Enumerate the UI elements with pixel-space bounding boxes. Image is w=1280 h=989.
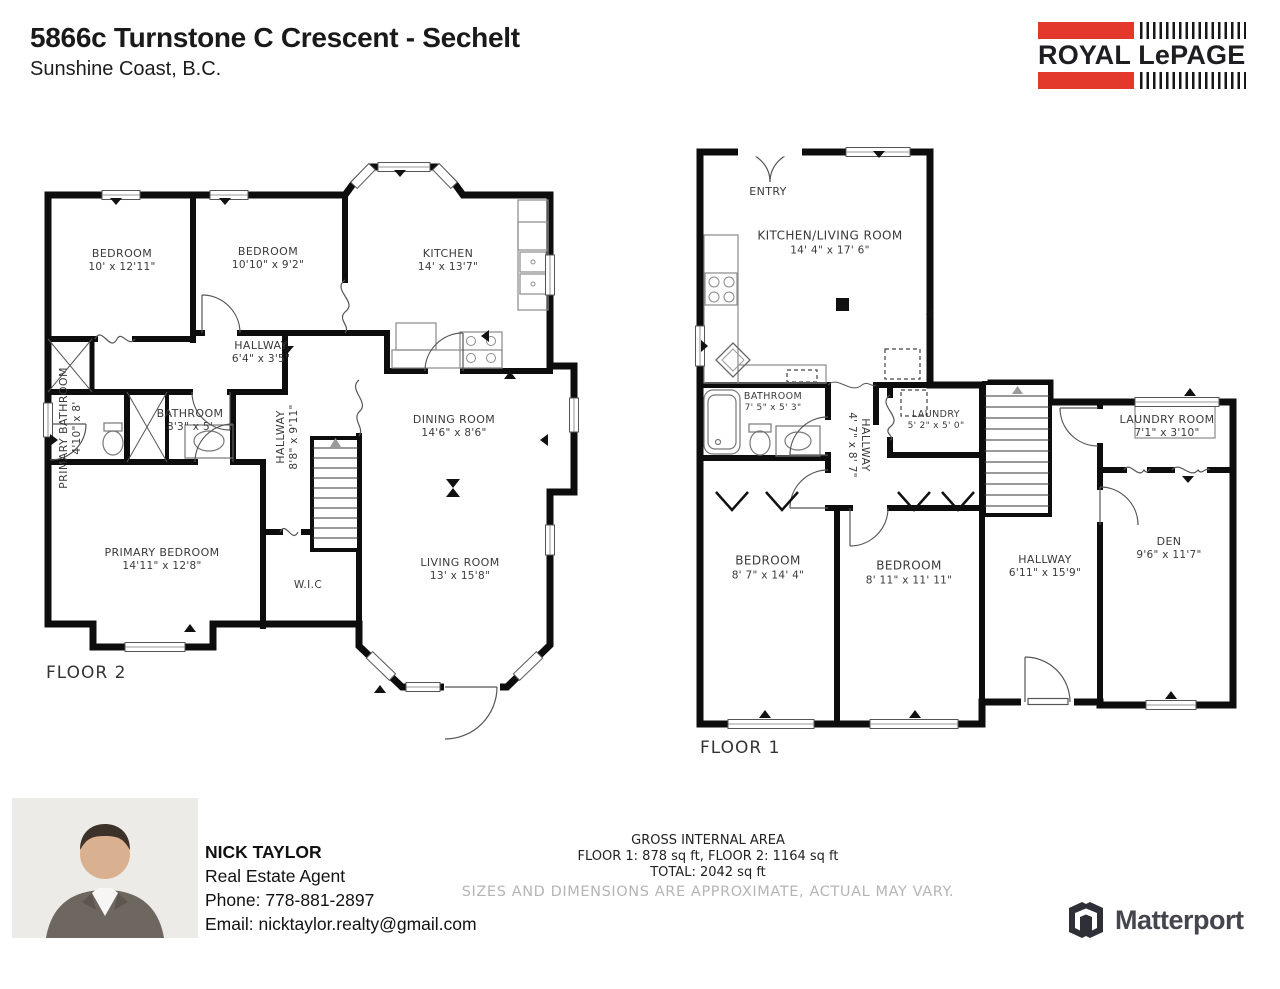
- room-label-bathroom: BATHROOM 7' 5" x 5' 3": [744, 391, 802, 415]
- room-name: W.I.C: [294, 579, 322, 593]
- room-label-primary-bedroom: PRIMARY BEDROOM 14'11" x 12'8": [104, 546, 219, 574]
- area-floors: FLOOR 1: 878 sq ft, FLOOR 2: 1164 sq ft: [448, 849, 968, 865]
- room-label-hallway2: HALLWAY 6'11" x 15'9": [1009, 553, 1081, 581]
- room-label-entry: ENTRY: [749, 185, 787, 199]
- room-dims: 14'6" x 8'6": [413, 427, 495, 441]
- agent-portrait-illustration: [12, 798, 198, 938]
- room-label-living-room: LIVING ROOM 13' x 15'8": [420, 556, 499, 584]
- room-label-wic: W.I.C: [294, 579, 322, 593]
- area-title: GROSS INTERNAL AREA: [448, 833, 968, 849]
- matterport-wordmark: Matterport: [1115, 905, 1244, 936]
- agent-info: NICK TAYLOR Real Estate Agent Phone: 778…: [205, 840, 477, 936]
- room-label-dining-room: DINING ROOM 14'6" x 8'6": [413, 413, 495, 441]
- matterport-icon: [1066, 900, 1106, 940]
- floor2-drawing: [40, 140, 600, 790]
- stripes-icon: [1140, 22, 1246, 39]
- room-label-bedroom2: BEDROOM 10'10" x 9'2": [232, 245, 304, 273]
- room-name: HALLWAY: [274, 404, 288, 469]
- agent-name: NICK TAYLOR: [205, 840, 477, 864]
- room-label-laundry: LAUNDRY 5' 2" x 5' 0": [908, 409, 965, 433]
- room-label-bathroom: BATHROOM 8'3" x 5': [157, 407, 224, 435]
- area-summary: GROSS INTERNAL AREA FLOOR 1: 878 sq ft, …: [448, 833, 968, 900]
- room-dims: 10'10" x 9'2": [232, 259, 304, 273]
- room-name: BEDROOM: [732, 553, 805, 569]
- room-dims: 6'4" x 3'5": [232, 353, 290, 367]
- room-name: BATHROOM: [744, 391, 802, 403]
- room-label-hallway: HALLWAY 4' 7" x 8' 7": [844, 412, 872, 478]
- room-dims: 9'6" x 11'7": [1136, 549, 1201, 563]
- agent-email: Email: nicktaylor.realty@gmail.com: [205, 912, 477, 936]
- room-name: PRIMARY BATHROOM: [57, 367, 71, 489]
- room-name: KITCHEN: [418, 247, 478, 261]
- red-bar-icon: [1038, 72, 1134, 89]
- room-dims: 14' 4" x 17' 6": [757, 244, 902, 258]
- room-name: BEDROOM: [866, 558, 953, 574]
- royal-lepage-bar-top: [1038, 22, 1246, 39]
- room-name: LAUNDRY: [908, 409, 965, 421]
- room-label-primary-bathroom: PRIMARY BATHROOM 4'10" x 8': [57, 367, 85, 489]
- royal-lepage-bar-bottom: [1038, 72, 1246, 89]
- room-dims: 10' x 12'11": [88, 261, 155, 275]
- area-total: TOTAL: 2042 sq ft: [448, 865, 968, 881]
- room-label-den: DEN 9'6" x 11'7": [1136, 535, 1201, 563]
- room-label-bedroom1: BEDROOM 10' x 12'11": [88, 247, 155, 275]
- room-dims: 8'8" x 9'11": [288, 404, 302, 469]
- room-dims: 6'11" x 15'9": [1009, 567, 1081, 581]
- room-name: LAUNDRY ROOM: [1119, 413, 1214, 427]
- room-name: BATHROOM: [157, 407, 224, 421]
- room-dims: 7' 5" x 5' 3": [744, 403, 802, 415]
- royal-lepage-wordmark: ROYAL LePAGE: [1038, 40, 1246, 70]
- stripes-icon: [1140, 72, 1246, 89]
- room-name: KITCHEN/LIVING ROOM: [757, 228, 902, 244]
- room-dims: 7'1" x 3'10": [1119, 427, 1214, 441]
- area-disclaimer: SIZES AND DIMENSIONS ARE APPROXIMATE, AC…: [448, 884, 968, 900]
- floor2-tag: FLOOR 2: [46, 663, 126, 683]
- agent-phone: Phone: 778-881-2897: [205, 888, 477, 912]
- agent-role: Real Estate Agent: [205, 864, 477, 888]
- room-label-hallway: HALLWAY 6'4" x 3'5": [232, 339, 290, 367]
- room-name: ENTRY: [749, 185, 787, 199]
- room-label-hallway2: HALLWAY 8'8" x 9'11": [274, 404, 302, 469]
- room-name: HALLWAY: [858, 412, 872, 478]
- room-dims: 14'11" x 12'8": [104, 560, 219, 574]
- room-name: BEDROOM: [88, 247, 155, 261]
- room-name: BEDROOM: [232, 245, 304, 259]
- royal-lepage-logo: ROYAL LePAGE: [1038, 22, 1246, 89]
- page-title: 5866c Turnstone C Crescent - Sechelt: [30, 22, 520, 54]
- room-label-bedroom1: BEDROOM 8' 7" x 14' 4": [732, 553, 805, 582]
- floor1-plan: ENTRY KITCHEN/LIVING ROOM 14' 4" x 17' 6…: [680, 140, 1240, 790]
- room-name: PRIMARY BEDROOM: [104, 546, 219, 560]
- room-name: LIVING ROOM: [420, 556, 499, 570]
- room-name: DINING ROOM: [413, 413, 495, 427]
- room-label-kitchen: KITCHEN 14' x 13'7": [418, 247, 478, 275]
- floor1-tag: FLOOR 1: [700, 738, 780, 758]
- room-name: HALLWAY: [1009, 553, 1081, 567]
- red-bar-icon: [1038, 22, 1134, 39]
- floor2-plan: BEDROOM 10' x 12'11" BEDROOM 10'10" x 9'…: [40, 140, 600, 790]
- room-dims: 8' 7" x 14' 4": [732, 569, 805, 583]
- room-dims: 13' x 15'8": [420, 570, 499, 584]
- room-dims: 5' 2" x 5' 0": [908, 421, 965, 433]
- page-subtitle: Sunshine Coast, B.C.: [30, 58, 221, 81]
- room-label-laundry-room: LAUNDRY ROOM 7'1" x 3'10": [1119, 413, 1214, 441]
- room-name: HALLWAY: [232, 339, 290, 353]
- agent-photo: [12, 798, 198, 938]
- room-dims: 8'3" x 5': [157, 421, 224, 435]
- room-dims: 4' 7" x 8' 7": [844, 412, 858, 478]
- matterport-logo: Matterport: [1066, 900, 1244, 940]
- room-dims: 4'10" x 8': [71, 367, 85, 489]
- room-name: DEN: [1136, 535, 1201, 549]
- room-label-kitchen-living: KITCHEN/LIVING ROOM 14' 4" x 17' 6": [757, 228, 902, 257]
- room-dims: 8' 11" x 11' 11": [866, 574, 953, 588]
- room-dims: 14' x 13'7": [418, 261, 478, 275]
- room-label-bedroom2: BEDROOM 8' 11" x 11' 11": [866, 558, 953, 587]
